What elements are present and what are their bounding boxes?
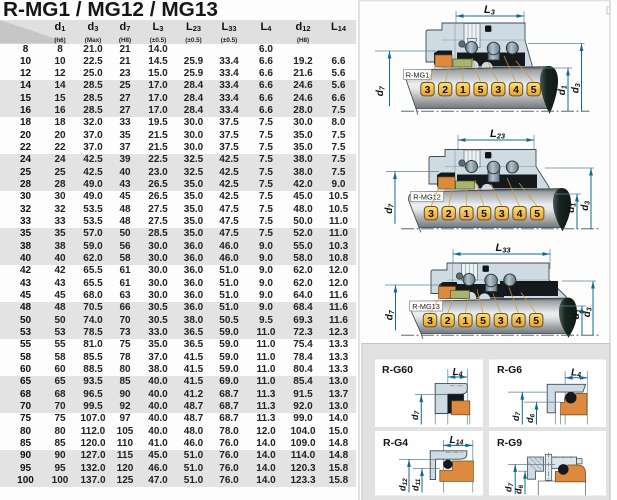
svg-text:3: 3 xyxy=(427,315,433,327)
svg-text:R-G60: R-G60 xyxy=(382,364,413,376)
svg-text:d7: d7 xyxy=(384,203,396,214)
svg-text:d7: d7 xyxy=(385,309,397,320)
svg-text:5: 5 xyxy=(481,208,487,220)
svg-text:2: 2 xyxy=(445,315,451,327)
svg-text:L23: L23 xyxy=(490,128,506,141)
svg-text:4: 4 xyxy=(517,208,523,220)
svg-text:3: 3 xyxy=(428,208,434,220)
svg-text:5: 5 xyxy=(478,84,484,96)
svg-text:5: 5 xyxy=(534,208,540,220)
svg-text:d7: d7 xyxy=(375,85,387,96)
svg-text:1: 1 xyxy=(462,315,468,327)
svg-text:d3: d3 xyxy=(580,201,592,211)
svg-text:4: 4 xyxy=(513,84,519,96)
svg-text:5: 5 xyxy=(531,84,537,96)
svg-text:d1: d1 xyxy=(557,85,569,95)
svg-text:2: 2 xyxy=(442,84,448,96)
svg-text:R-MG1: R-MG1 xyxy=(406,71,430,80)
svg-text:5: 5 xyxy=(480,315,486,327)
svg-text:d3: d3 xyxy=(582,307,594,317)
svg-text:3: 3 xyxy=(498,315,504,327)
svg-text:2: 2 xyxy=(446,208,452,220)
svg-text:L33: L33 xyxy=(496,242,512,255)
svg-text:R-G6: R-G6 xyxy=(497,364,522,376)
svg-text:L3: L3 xyxy=(484,4,496,17)
svg-text:3: 3 xyxy=(425,84,431,96)
svg-text:4: 4 xyxy=(516,315,522,327)
svg-text:1: 1 xyxy=(463,208,469,220)
svg-text:1: 1 xyxy=(460,84,466,96)
svg-text:3: 3 xyxy=(495,84,501,96)
svg-text:3: 3 xyxy=(499,208,505,220)
svg-text:R-G9: R-G9 xyxy=(497,437,522,449)
svg-text:R-G4: R-G4 xyxy=(383,437,408,449)
svg-text:5: 5 xyxy=(533,315,539,327)
svg-text:d3: d3 xyxy=(571,83,583,93)
